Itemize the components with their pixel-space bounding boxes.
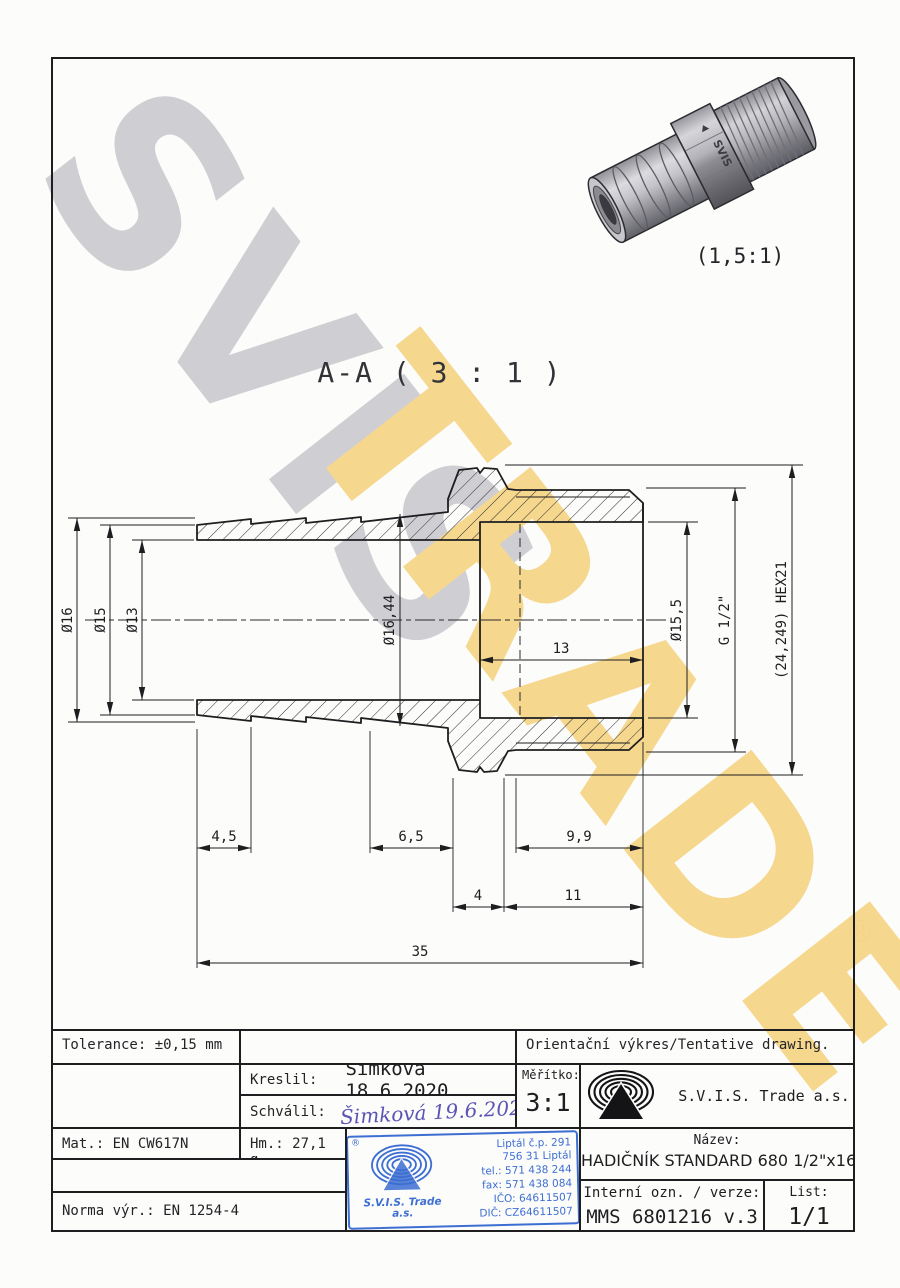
dim-dia15-5: Ø15,5	[669, 599, 685, 641]
svis-logo-icon	[584, 1069, 658, 1123]
schvalil-label: Schválil:	[250, 1104, 326, 1120]
dim-dia16-44: Ø16,44	[382, 595, 398, 646]
stamp-line: DIČ: CZ64611507	[451, 1204, 573, 1221]
dim-9-9: 9,9	[566, 829, 591, 845]
stamp-address: Liptál č.p. 291 756 31 Liptál tel.: 571 …	[449, 1135, 573, 1221]
kreslil-label: Kreslil:	[250, 1072, 317, 1088]
list-value: 1/1	[765, 1204, 853, 1230]
norma-cell: Norma výr.: EN 1254-4	[53, 1193, 347, 1230]
nazev-cell: Název: HADIČNÍK STANDARD 680 1/2"x16	[581, 1129, 853, 1181]
interni-value: MMS 6801216 v.3	[581, 1206, 763, 1228]
dim-4-5: 4,5	[211, 829, 236, 845]
list-label: List:	[765, 1185, 853, 1200]
schvalil-cell: Schválil: Šimková 19.6.2020	[241, 1096, 517, 1129]
dim-11: 11	[565, 888, 582, 904]
tolerance-cell: Tolerance: ±0,15 mm	[53, 1031, 241, 1065]
list-cell: List: 1/1	[765, 1181, 853, 1230]
dim-dia13: Ø13	[125, 607, 141, 632]
schvalil-signature: Šimková 19.6.2020	[339, 1096, 517, 1129]
section-wall-top	[197, 468, 643, 540]
meritko-label: Měřítko:	[522, 1068, 574, 1082]
product-render: SVIS	[583, 60, 827, 260]
section-wall-bottom	[197, 700, 643, 772]
dim-4: 4	[474, 888, 482, 904]
dim-dia15: Ø15	[93, 607, 109, 632]
nazev-value: HADIČNÍK STANDARD 680 1/2"x16	[581, 1151, 853, 1170]
kreslil-value: Šimková 18.6.2020	[345, 1065, 506, 1096]
dim-thread: G 1/2"	[717, 595, 733, 646]
dim-6-5: 6,5	[398, 829, 423, 845]
interni-cell: Interní ozn. / verze: MMS 6801216 v.3	[581, 1181, 765, 1230]
section-label: A-A ( 3 : 1 )	[295, 356, 585, 389]
empty-cell-bottom	[53, 1160, 347, 1193]
kreslil-cell: Kreslil: Šimková 18.6.2020	[241, 1065, 517, 1096]
title-block: Tolerance: ±0,15 mm Orientační výkres/Te…	[51, 1029, 855, 1232]
empty-cell-top	[241, 1031, 517, 1065]
fitting-body: SVIS	[583, 67, 826, 257]
dim-hex: (24,249) HEX21	[774, 561, 790, 679]
meritko-cell: Měřítko: 3:1	[517, 1065, 581, 1129]
company-name: S.V.I.S. Trade a.s.	[678, 1087, 850, 1105]
stamp-cell: ® S.V.I.S. Trade a.s. Liptál č.p. 291	[347, 1129, 581, 1230]
material-cell: Mat.: EN CW617N	[53, 1129, 241, 1160]
interni-label: Interní ozn. / verze:	[581, 1185, 763, 1201]
dim-35: 35	[412, 944, 429, 960]
dim-dia16: Ø16	[60, 607, 76, 632]
stamp-logo-icon	[366, 1142, 437, 1194]
company-stamp: ® S.V.I.S. Trade a.s. Liptál č.p. 291	[347, 1130, 580, 1230]
empty-cell-left	[53, 1065, 241, 1129]
weight-cell: Hm.: 27,1 g	[241, 1129, 347, 1160]
meritko-value: 3:1	[522, 1088, 574, 1117]
stamp-registered-icon: ®	[351, 1138, 360, 1148]
render-scale-label: (1,5:1)	[655, 244, 825, 268]
nazev-label: Název:	[581, 1133, 853, 1148]
orientacni-cell: Orientační výkres/Tentative drawing.	[517, 1031, 853, 1065]
dimension-labels: Ø16 Ø15 Ø13 Ø16,44 Ø15,5 G 1/2" (24,249)…	[60, 561, 790, 960]
dim-13: 13	[553, 641, 570, 657]
company-cell: S.V.I.S. Trade a.s.	[581, 1065, 853, 1129]
